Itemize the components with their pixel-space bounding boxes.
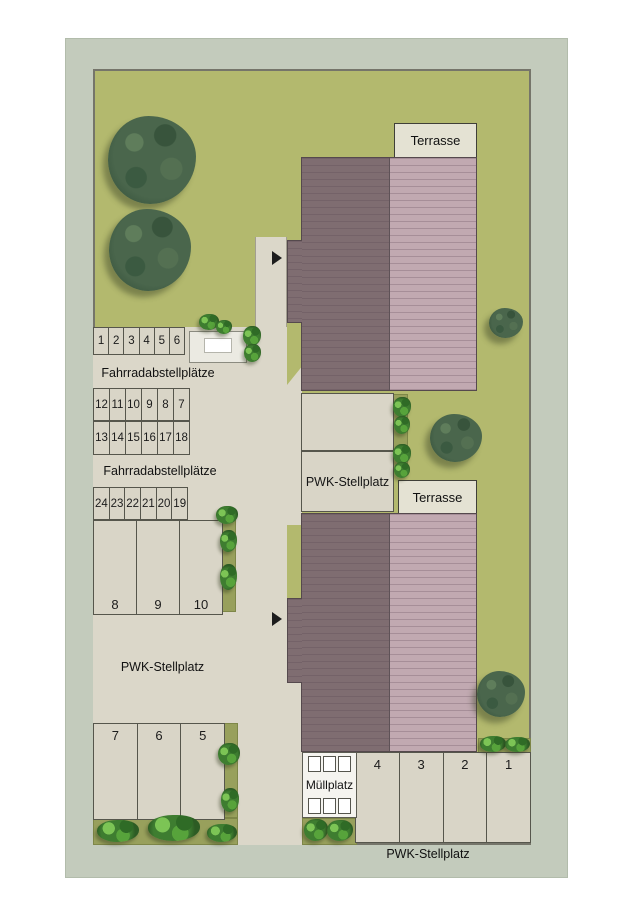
parking-space: 5: [181, 724, 224, 819]
bike-stall: 3: [124, 328, 139, 354]
building-north-annex: [287, 240, 302, 323]
bike-stall: 17: [158, 422, 174, 454]
site-plan-canvas: Terrasse Terrasse 1 2 3 4 5 6 Fahrradabs…: [0, 0, 636, 900]
bike-stall: 4: [140, 328, 155, 354]
bike-stall: 1: [94, 328, 109, 354]
parking-row-bottom: 4 3 2 1: [355, 752, 531, 843]
terrace-south-label: Terrasse: [413, 490, 463, 505]
parking-cell-between-buildings-upper: [301, 393, 394, 451]
bike-stall: 15: [126, 422, 142, 454]
waste-bin: [323, 798, 336, 814]
building-south-roof-west-slope: [302, 514, 390, 751]
parking-space: 3: [400, 753, 444, 842]
parking-space: 10: [180, 521, 222, 614]
parking-area-label-bottom: PWK-Stellplatz: [370, 847, 486, 861]
bike-stall: 11: [110, 389, 126, 420]
bike-stall: 18: [174, 422, 189, 454]
building-north-roof: [301, 157, 477, 391]
bike-stall: 6: [170, 328, 184, 354]
parking-area-label-left: PWK-Stellplatz: [105, 660, 220, 674]
parking-space: 6: [138, 724, 182, 819]
entrance-arrow-icon-north: [272, 251, 282, 265]
shed-skylight: [204, 338, 232, 353]
bike-stall: 14: [110, 422, 126, 454]
waste-bin: [308, 798, 321, 814]
terrace-north: Terrasse: [394, 123, 477, 158]
bike-stall: 20: [157, 488, 173, 519]
waste-bin-row-bottom: [308, 798, 351, 814]
building-north-roof-west-slope: [302, 158, 390, 390]
waste-bin: [338, 756, 351, 772]
bike-stall: 12: [94, 389, 110, 420]
bike-stall: 16: [142, 422, 158, 454]
parking-space: 8: [94, 521, 137, 614]
building-south-roof: [301, 513, 477, 752]
building-north-roof-east-slope: [390, 158, 477, 390]
parking-area-label-mid: PWK-Stellplatz: [306, 475, 389, 489]
parking-row-mid-left: 8 9 10: [93, 520, 223, 615]
parking-space: 9: [137, 521, 180, 614]
parking-row-lower-left: 7 6 5: [93, 723, 225, 820]
bike-stall: 23: [110, 488, 126, 519]
bike-stall: 7: [174, 389, 189, 420]
bike-stall: 19: [172, 488, 187, 519]
bike-stall: 10: [126, 389, 142, 420]
entrance-path-north: [255, 237, 287, 332]
waste-bin: [338, 798, 351, 814]
bike-area-label-2: Fahrradabstellplätze: [97, 464, 223, 478]
waste-bin-row-top: [308, 756, 351, 772]
entrance-arrow-icon-south: [272, 612, 282, 626]
bike-stall-row-c: 24 23 22 21 20 19: [93, 487, 188, 520]
shed-structure: [189, 331, 247, 363]
waste-bin: [308, 756, 321, 772]
bike-stall: 8: [158, 389, 174, 420]
parking-space: 2: [444, 753, 488, 842]
muellplatz-label: Müllplatz: [306, 778, 353, 792]
bike-stall-row-b: 13 14 15 16 17 18: [93, 421, 190, 455]
bike-stall-row-a: 12 11 10 9 8 7: [93, 388, 190, 421]
parking-space: 1: [487, 753, 530, 842]
bike-stall-row-top: 1 2 3 4 5 6: [93, 327, 185, 355]
bike-stall: 5: [155, 328, 170, 354]
parking-space: 4: [356, 753, 400, 842]
bike-stall: 21: [141, 488, 157, 519]
bike-stall: 22: [125, 488, 141, 519]
bike-stall: 13: [94, 422, 110, 454]
bike-stall: 24: [94, 488, 110, 519]
planting-bed-east-of-space10: [222, 512, 236, 612]
waste-bin: [323, 756, 336, 772]
parking-space: 7: [94, 724, 138, 819]
muellplatz-area: Müllplatz: [302, 752, 357, 818]
terrace-south: Terrasse: [398, 480, 477, 514]
building-south-annex: [287, 598, 302, 683]
bike-stall: 2: [109, 328, 124, 354]
grass-patch-south: [287, 525, 301, 598]
bike-stall: 9: [142, 389, 158, 420]
terrace-north-label: Terrasse: [411, 133, 461, 148]
parking-cell-between-buildings-lower: PWK-Stellplatz: [301, 451, 394, 512]
bike-area-label-1: Fahrradabstellplätze: [95, 366, 221, 380]
building-south-roof-east-slope: [390, 514, 477, 751]
